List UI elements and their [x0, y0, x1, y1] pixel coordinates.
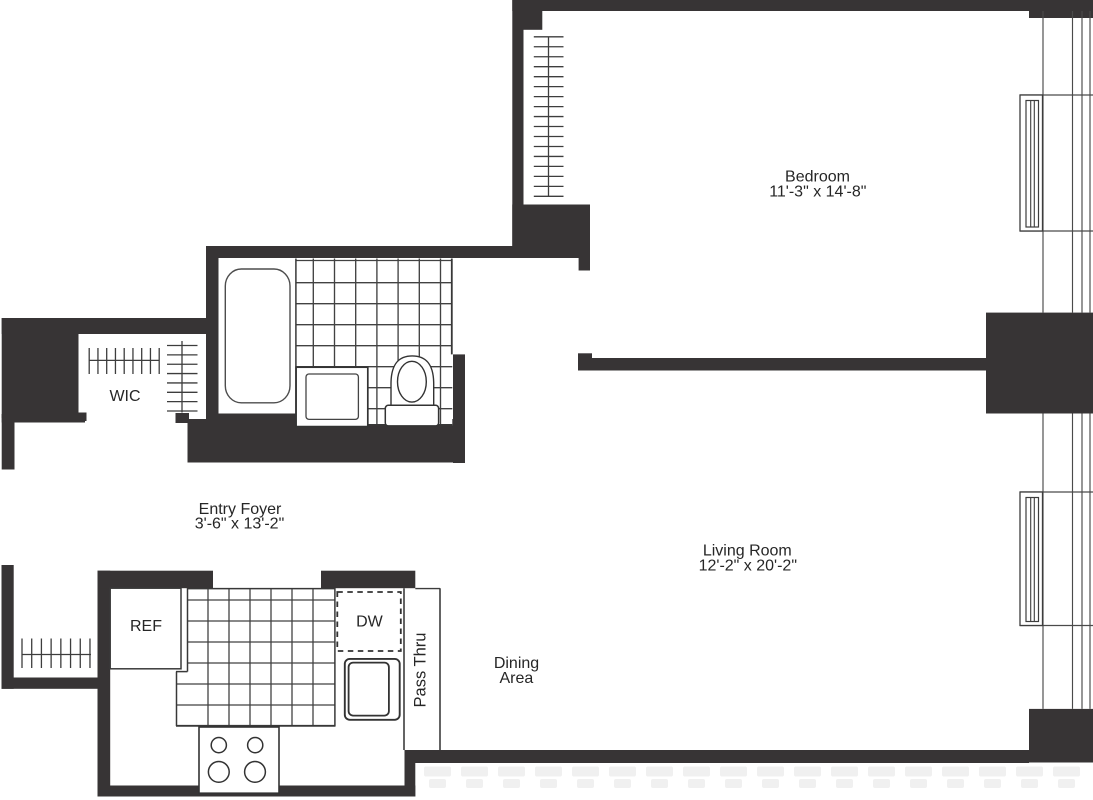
- svg-text:3'-6" x 13'-2": 3'-6" x 13'-2": [195, 516, 285, 533]
- svg-text:11'-3" x 14'-8": 11'-3" x 14'-8": [769, 183, 866, 200]
- svg-text:WIC: WIC: [109, 388, 140, 405]
- svg-text:DW: DW: [356, 613, 384, 630]
- svg-text:REF: REF: [130, 618, 162, 635]
- svg-text:Area: Area: [500, 670, 534, 687]
- svg-text:12'-2" x 20'-2": 12'-2" x 20'-2": [699, 558, 797, 575]
- svg-text:Pass Thru: Pass Thru: [412, 633, 430, 708]
